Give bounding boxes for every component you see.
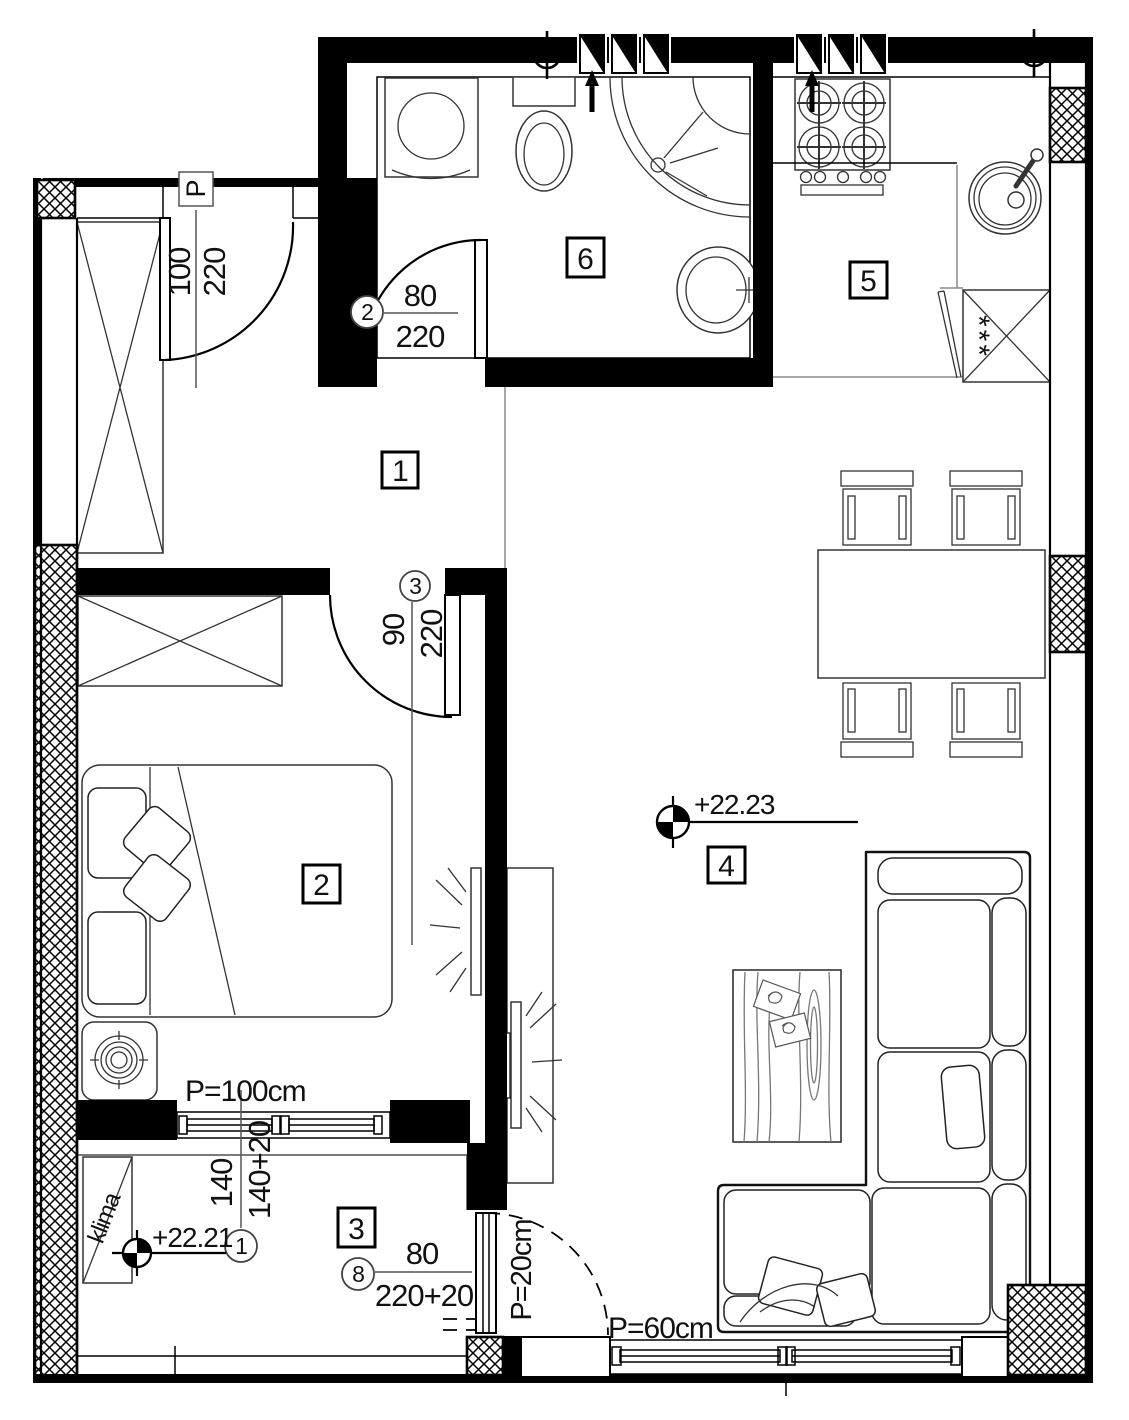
floor-plan-drawing: *** <box>0 0 1129 1420</box>
room-label-bathroom: 6 <box>567 238 604 277</box>
back-cushion <box>992 898 1026 1046</box>
chair <box>841 471 913 545</box>
nightstand-plant <box>82 1022 157 1100</box>
room-number: 5 <box>860 265 876 298</box>
hall-closet <box>77 222 163 553</box>
door-height: 220 <box>197 247 232 296</box>
room-number: 4 <box>718 850 734 883</box>
room-label-hall: 1 <box>382 452 418 488</box>
parapet-balcony-door: P=20cm <box>506 1219 538 1320</box>
wall-balcony-east <box>467 1143 507 1210</box>
door-width: 100 <box>162 247 197 296</box>
door-no: 8 <box>352 1261 364 1287</box>
dining-table <box>818 550 1045 678</box>
wall-bath-west <box>318 37 347 387</box>
toilet <box>513 77 575 191</box>
chair <box>841 683 913 757</box>
room-label-living: 4 <box>708 847 745 883</box>
chair <box>950 683 1022 757</box>
room-number: 1 <box>392 455 408 488</box>
window-width: 140 <box>204 1158 239 1207</box>
kitchen-sink <box>969 149 1043 234</box>
fridge-freezer-stars: *** <box>962 315 995 359</box>
armrest <box>878 858 1022 894</box>
rug <box>733 970 841 1142</box>
door-no: 3 <box>409 573 421 599</box>
hatch-right-mid <box>1050 556 1086 652</box>
wall-bedroom-living <box>485 595 507 1210</box>
hatch-right-top <box>1050 88 1086 162</box>
seat-cushion <box>878 900 990 1048</box>
wall-bedroom-south <box>77 1100 177 1140</box>
hatch-bottom-mid <box>467 1337 503 1375</box>
washing-machine <box>385 78 478 179</box>
hatch-corner-entrance <box>37 180 75 218</box>
bedroom-window <box>177 1112 390 1138</box>
wall-bath-south <box>345 358 365 387</box>
room-label-bedroom: 2 <box>303 865 340 903</box>
room-label-kitchen: 5 <box>850 262 887 298</box>
door-no: 2 <box>361 299 373 325</box>
door-width: 80 <box>406 1236 439 1271</box>
fridge: *** <box>938 290 1050 382</box>
parapet-living-window: P=60cm <box>608 1312 713 1345</box>
bedroom-wardrobe <box>78 596 282 686</box>
wall-top <box>318 37 1093 63</box>
bedroom-tv <box>430 868 481 995</box>
room-number: 6 <box>577 243 593 276</box>
door-height: 220 <box>396 319 445 354</box>
floor-plan-sheet: *** <box>0 0 1129 1420</box>
door-mark: P <box>181 180 211 197</box>
chair <box>950 471 1022 545</box>
room-number: 2 <box>313 869 329 902</box>
pillow <box>88 912 146 1004</box>
door-width: 80 <box>404 278 437 313</box>
window-no: 1 <box>235 1233 247 1259</box>
room-label-balcony: 3 <box>338 1208 375 1247</box>
wall-bedroom-north <box>77 568 330 595</box>
seat-cushion <box>872 1188 990 1324</box>
door-height: 220 <box>414 609 449 658</box>
stove <box>795 79 890 195</box>
bed <box>82 765 392 1017</box>
parapet-bedroom-window: P=100cm <box>185 1075 306 1108</box>
level-value: +22.23 <box>694 789 775 820</box>
throw-pillow <box>940 1065 985 1150</box>
door-height: 220+20 <box>375 1278 474 1313</box>
room-number: 3 <box>348 1213 364 1246</box>
level-value: +22.21 <box>152 1222 233 1253</box>
back-cushion <box>992 1050 1026 1180</box>
hatch-corner-bottom-right <box>1008 1285 1086 1375</box>
level-marker-living: +22.23 <box>657 789 858 848</box>
door-width: 90 <box>376 613 411 646</box>
shower <box>610 77 750 217</box>
window-height: 140+20 <box>242 1120 277 1219</box>
living-window <box>610 1340 962 1396</box>
wall-bath-kitchen <box>753 63 773 387</box>
